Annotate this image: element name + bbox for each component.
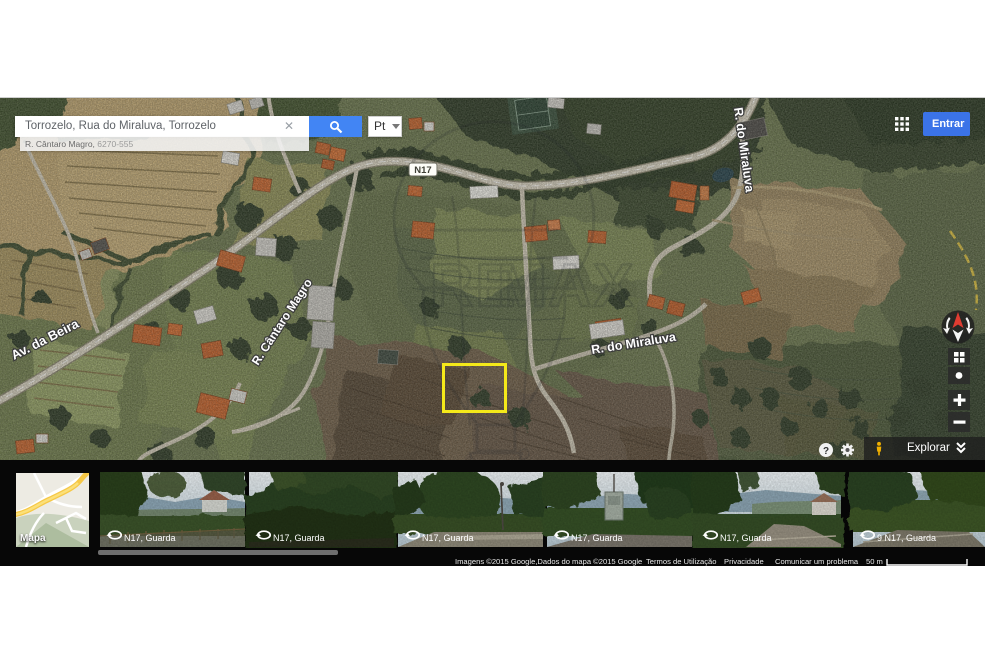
svg-text:N17, Guarda: N17, Guarda	[571, 533, 623, 543]
svg-text:N17, Guarda: N17, Guarda	[720, 533, 772, 543]
svg-text:N17: N17	[414, 165, 431, 176]
svg-text:N17, Guarda: N17, Guarda	[124, 533, 176, 543]
svg-text:AX: AX	[548, 252, 635, 319]
svg-text:M: M	[497, 252, 549, 319]
svg-text:Explorar: Explorar	[907, 442, 950, 454]
svg-text:?: ?	[823, 446, 829, 457]
svg-text:N17, Guarda: N17, Guarda	[422, 533, 474, 543]
svg-text:9 N17, Guarda: 9 N17, Guarda	[877, 533, 936, 543]
svg-text:N17, Guarda: N17, Guarda	[273, 533, 325, 543]
